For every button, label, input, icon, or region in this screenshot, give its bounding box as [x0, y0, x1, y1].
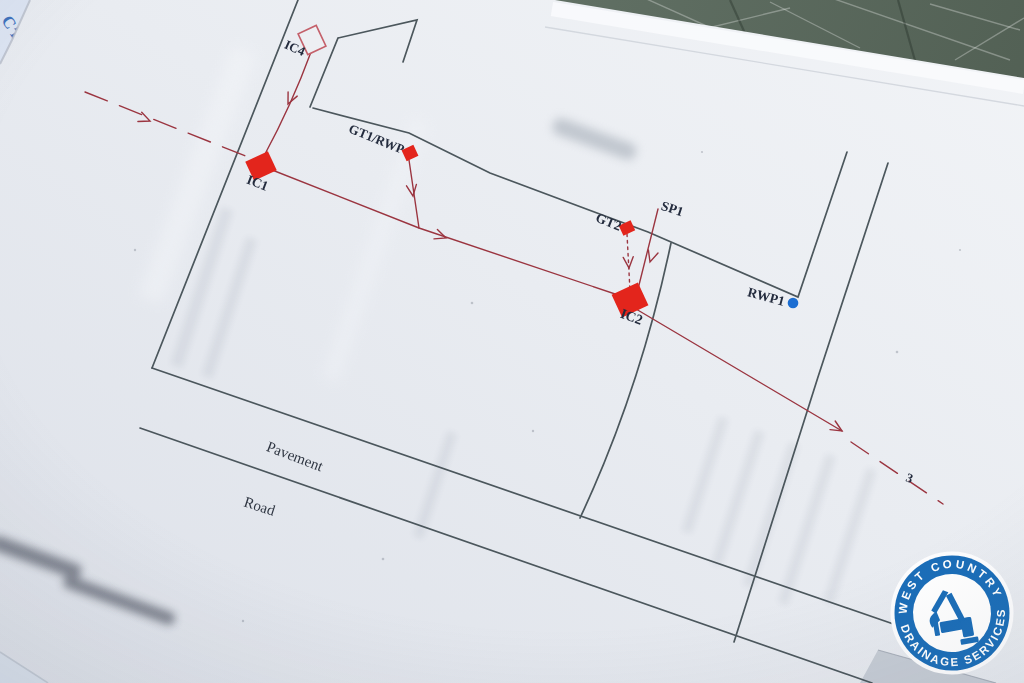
photo-canvas: C D Drain E	[0, 0, 1024, 683]
photo-vignette	[0, 0, 1024, 683]
drainage-plan-photo: C D Drain E	[0, 0, 1024, 683]
